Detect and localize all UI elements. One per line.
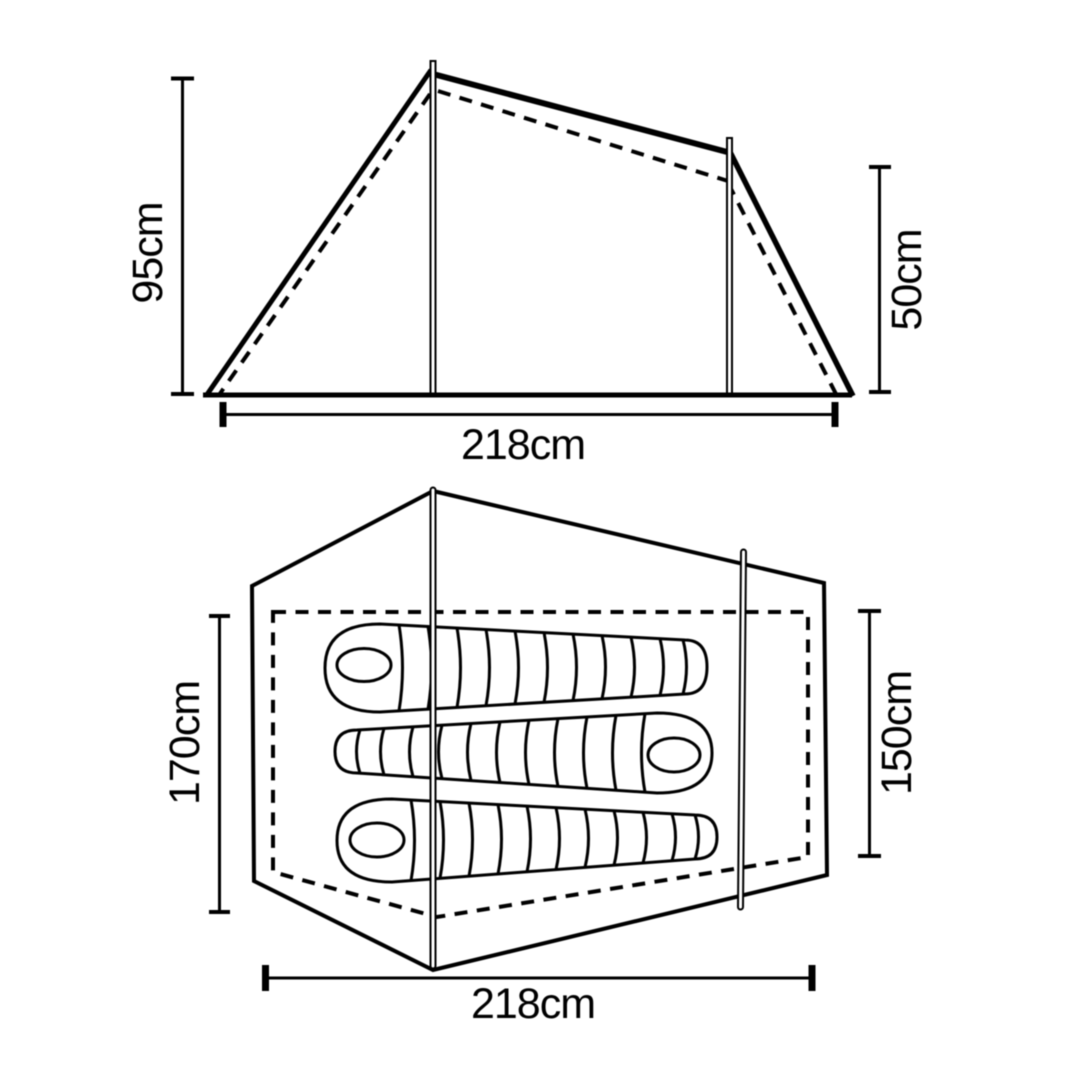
svg-text:50cm: 50cm <box>883 229 931 330</box>
svg-text:95cm: 95cm <box>124 202 172 303</box>
svg-text:150cm: 150cm <box>873 671 921 795</box>
svg-text:218cm: 218cm <box>461 421 585 469</box>
svg-text:170cm: 170cm <box>161 681 209 805</box>
svg-text:218cm: 218cm <box>471 980 595 1028</box>
